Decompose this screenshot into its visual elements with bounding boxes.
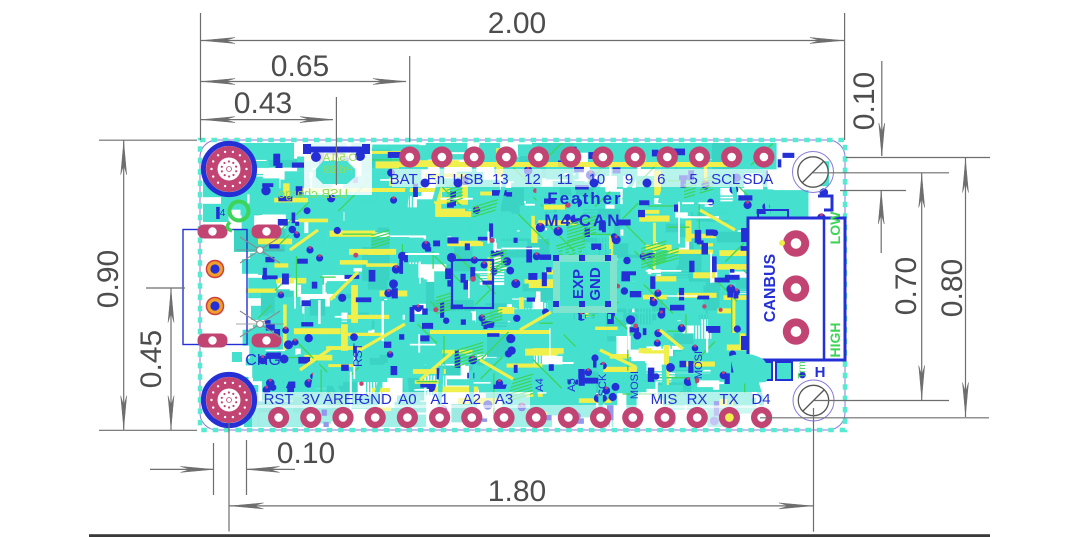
svg-text:RX: RX xyxy=(687,391,708,408)
svg-text:LOW: LOW xyxy=(827,211,843,244)
svg-text:GND: GND xyxy=(359,391,393,408)
svg-text:A4: A4 xyxy=(534,378,546,391)
svg-text:A5: A5 xyxy=(566,378,578,391)
svg-text:5: 5 xyxy=(689,171,697,188)
svg-text:10: 10 xyxy=(589,171,606,188)
svg-text:O.5/1A: O.5/1A xyxy=(322,152,357,164)
svg-text:A1: A1 xyxy=(430,391,448,408)
svg-text:MOSI: MOSI xyxy=(693,351,705,379)
svg-text:0.45: 0.45 xyxy=(135,330,168,388)
svg-text:H: H xyxy=(815,364,826,381)
svg-text:USB charge: USB charge xyxy=(278,186,348,201)
svg-text:SDA: SDA xyxy=(742,171,773,188)
svg-text:RST: RST xyxy=(264,391,294,408)
svg-text:SCL: SCL xyxy=(711,171,740,188)
svg-text:0.65: 0.65 xyxy=(271,50,329,83)
svg-text:SCK: SCK xyxy=(597,373,609,396)
svg-text:2.00: 2.00 xyxy=(488,7,546,40)
svg-text:MIS: MIS xyxy=(651,391,678,408)
svg-text:6: 6 xyxy=(657,171,665,188)
svg-text:CHG: CHG xyxy=(245,352,281,369)
svg-text:11: 11 xyxy=(557,171,573,188)
svg-text:A3: A3 xyxy=(495,391,513,408)
svg-text:0.10: 0.10 xyxy=(277,437,335,470)
svg-text:GND: GND xyxy=(587,267,604,301)
svg-text:HIGH: HIGH xyxy=(827,323,843,358)
svg-text:0.10: 0.10 xyxy=(848,72,881,130)
svg-text:▐4: ▐4 xyxy=(213,206,226,220)
svg-text:Trm: Trm xyxy=(797,361,808,378)
svg-text:12: 12 xyxy=(524,171,541,188)
svg-text:A2: A2 xyxy=(463,391,481,408)
svg-text:CANBUS: CANBUS xyxy=(762,253,779,322)
svg-text:A0: A0 xyxy=(398,391,416,408)
svg-text:EXP: EXP xyxy=(570,269,587,299)
svg-text:En: En xyxy=(427,171,445,188)
svg-text:9: 9 xyxy=(625,171,633,188)
svg-text:Feather: Feather xyxy=(547,189,622,208)
svg-text:BAT: BAT xyxy=(390,171,418,188)
svg-text:TX: TX xyxy=(719,391,738,408)
svg-text:0.90: 0.90 xyxy=(92,250,125,308)
svg-text:RST: RST xyxy=(351,342,365,367)
svg-text:1.80: 1.80 xyxy=(488,475,546,508)
svg-text:M4 CAN: M4 CAN xyxy=(544,211,621,230)
svg-text:MOSI: MOSI xyxy=(629,371,641,399)
svg-text:D4: D4 xyxy=(751,391,770,408)
svg-text:0.43: 0.43 xyxy=(234,87,292,120)
svg-text:0.80: 0.80 xyxy=(936,259,969,317)
svg-text:AREF: AREF xyxy=(323,391,363,408)
svg-text:3V: 3V xyxy=(302,391,320,408)
svg-text:Pd B9: Pd B9 xyxy=(323,164,353,176)
svg-text:0.70: 0.70 xyxy=(890,257,923,315)
svg-text:13: 13 xyxy=(492,171,509,188)
svg-text:USB: USB xyxy=(453,171,484,188)
